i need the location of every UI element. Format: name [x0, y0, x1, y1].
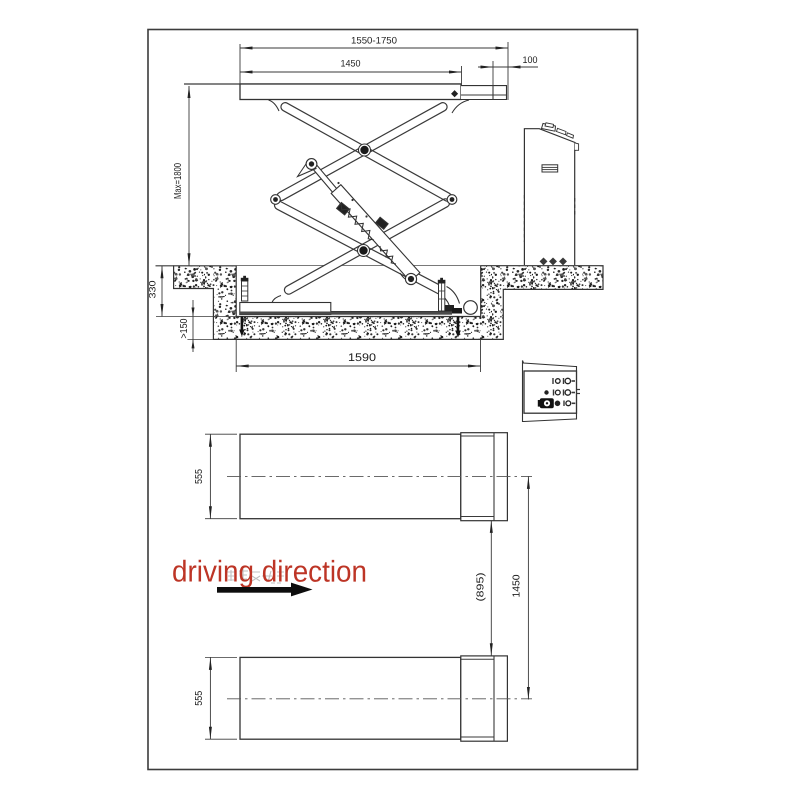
svg-text:330: 330 [148, 281, 159, 299]
svg-text:1450: 1450 [512, 574, 523, 597]
svg-text:1550-1750: 1550-1750 [351, 35, 397, 46]
svg-text:555: 555 [194, 469, 205, 484]
svg-text:1450: 1450 [340, 58, 360, 69]
svg-text:555: 555 [194, 690, 205, 705]
svg-text:1590: 1590 [348, 352, 376, 364]
svg-text:>150: >150 [179, 318, 190, 338]
svg-text:Max=1800: Max=1800 [173, 163, 184, 199]
svg-text:100: 100 [522, 55, 537, 66]
svg-text:(895): (895) [476, 573, 487, 602]
svg-text:driving direction: driving direction [172, 556, 367, 589]
